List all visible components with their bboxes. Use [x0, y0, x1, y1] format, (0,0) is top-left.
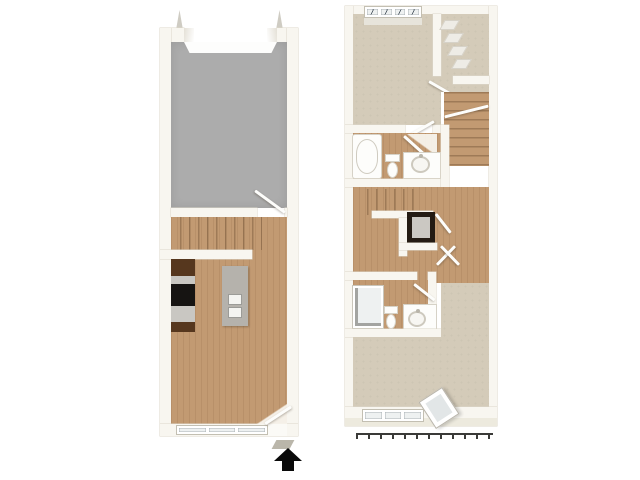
- window-sill-shadow: [364, 18, 422, 25]
- toilet2-bowl: [386, 314, 396, 329]
- floorplan-canvas: [0, 0, 640, 480]
- balcony-railing: [356, 433, 493, 442]
- garage-pillar-right: [276, 10, 283, 30]
- floor1-plan: [160, 8, 298, 472]
- floor2-plan: [345, 6, 497, 447]
- bedroom2-window: [362, 409, 424, 422]
- garage-jamb-right: [267, 28, 277, 42]
- bedroom1-wall: [345, 125, 405, 133]
- toilet2-tank: [384, 306, 398, 314]
- washer-dryer: [407, 212, 435, 243]
- left-wall: [345, 6, 353, 426]
- window-pane: [381, 9, 392, 15]
- right-wall: [489, 6, 497, 426]
- right-wall: [287, 28, 298, 436]
- shower: [353, 286, 383, 328]
- window-pane: [404, 412, 421, 419]
- vanity1-faucet: [419, 154, 423, 158]
- range: [171, 284, 195, 306]
- toilet1-bowl: [387, 162, 398, 178]
- counter-top-upper: [171, 276, 195, 284]
- garage-jamb-left: [184, 28, 194, 42]
- hall-bathroom2-wall: [345, 272, 417, 280]
- entry-arrow-stem: [282, 460, 294, 471]
- window-pane: [408, 9, 419, 15]
- laundry-wall-bottom: [399, 243, 437, 250]
- counter-top-lower: [171, 306, 195, 322]
- bedroom2-floor: [353, 337, 489, 407]
- window-pane: [209, 428, 236, 432]
- bathtub-basin: [356, 139, 378, 174]
- stair-kitchen-wall: [160, 250, 252, 259]
- bathroom1-right-wall: [441, 125, 449, 187]
- left-wall: [160, 28, 171, 436]
- laundry-wall-left: [399, 218, 407, 256]
- corridor-carpet: [441, 283, 489, 337]
- garage-stair-wall: [171, 208, 257, 217]
- vanity2-sink: [408, 311, 426, 327]
- staircase: [180, 217, 262, 250]
- washer-dryer-top: [412, 217, 430, 238]
- entry-door-opening: [268, 424, 287, 436]
- closet-wall-horizontal: [453, 76, 489, 84]
- window-pane: [385, 412, 402, 419]
- bathroom2-bottom-wall: [345, 329, 445, 337]
- bathroom1-bottom-wall: [345, 179, 449, 187]
- vanity1-sink: [411, 156, 430, 173]
- window-pane: [238, 428, 265, 432]
- island-sink-2: [228, 307, 242, 318]
- window-pane: [179, 428, 206, 432]
- garage-door-opening: [184, 28, 277, 42]
- bedroom1-wall-stub: [433, 125, 441, 133]
- closet-wall-vertical: [433, 14, 441, 76]
- window-pane: [365, 412, 382, 419]
- window-pane: [395, 9, 406, 15]
- toilet1-tank: [385, 154, 400, 162]
- living-room-window: [176, 425, 268, 435]
- vanity2-faucet: [416, 309, 420, 313]
- bathtub: [352, 134, 382, 179]
- garage-threshold: [184, 42, 277, 53]
- island-sink-1: [228, 294, 242, 305]
- garage-stair-wall-stub: [285, 208, 287, 217]
- staircase-upper: [444, 92, 489, 166]
- garage-pillar-left: [176, 10, 183, 30]
- bedroom1-window-band: [364, 6, 422, 18]
- window-pane: [367, 9, 378, 15]
- casement-glass: [425, 394, 452, 422]
- garage-floor: [171, 42, 287, 208]
